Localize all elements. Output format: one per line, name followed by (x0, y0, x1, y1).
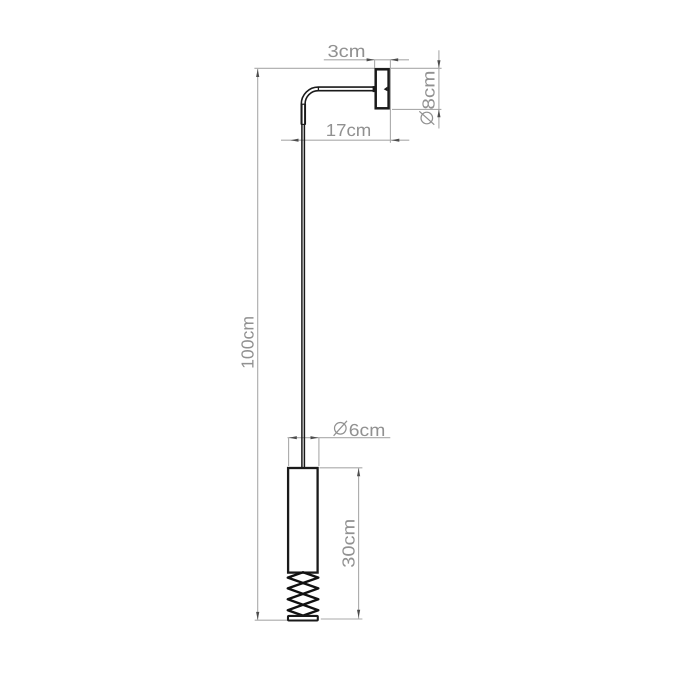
svg-text:8cm: 8cm (418, 71, 438, 110)
svg-text:3cm: 3cm (328, 41, 366, 61)
svg-text:6cm: 6cm (349, 420, 386, 440)
svg-text:17cm: 17cm (326, 120, 372, 140)
svg-text:100cm: 100cm (238, 316, 258, 369)
svg-text:30cm: 30cm (339, 519, 359, 568)
